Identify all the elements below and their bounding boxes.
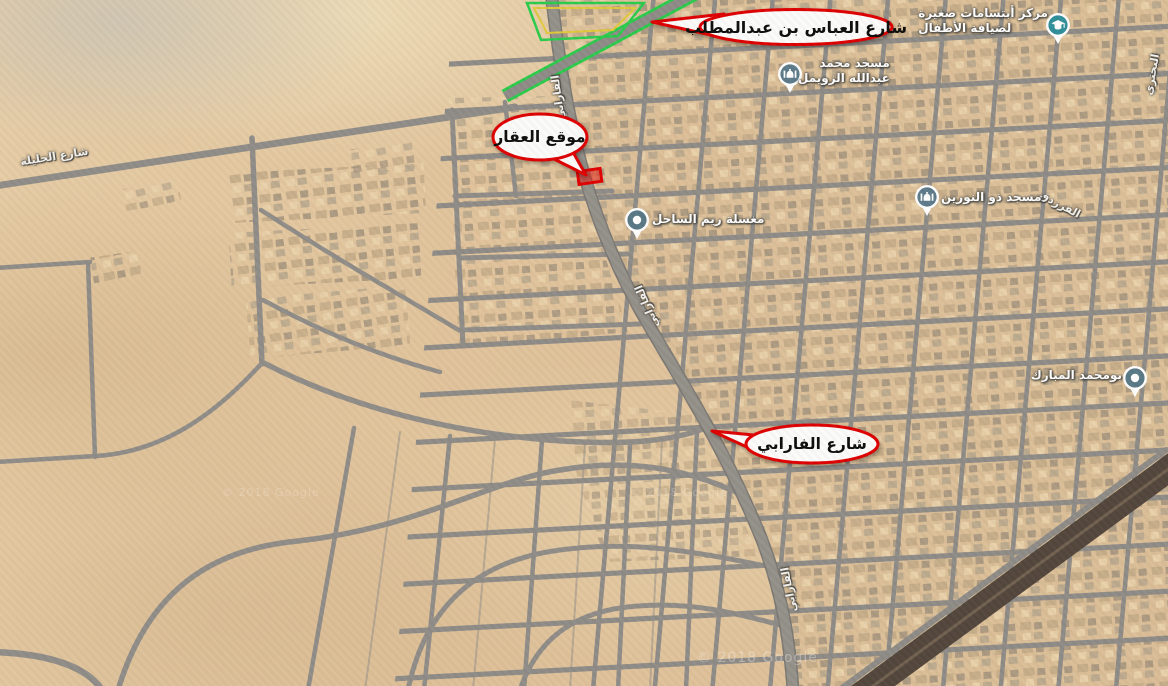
map-canvas[interactable]: © 2018 Google © 2018 Google © 2018 Googl… xyxy=(0,0,1168,686)
callout-farabi-label: شارع الفارابي xyxy=(748,430,876,458)
annotations-overlay xyxy=(0,0,1168,686)
callout-abbas-label: شارع العباس بن عبدالمطلب xyxy=(703,12,889,42)
callout-property-label: موقع العقار xyxy=(495,122,585,152)
